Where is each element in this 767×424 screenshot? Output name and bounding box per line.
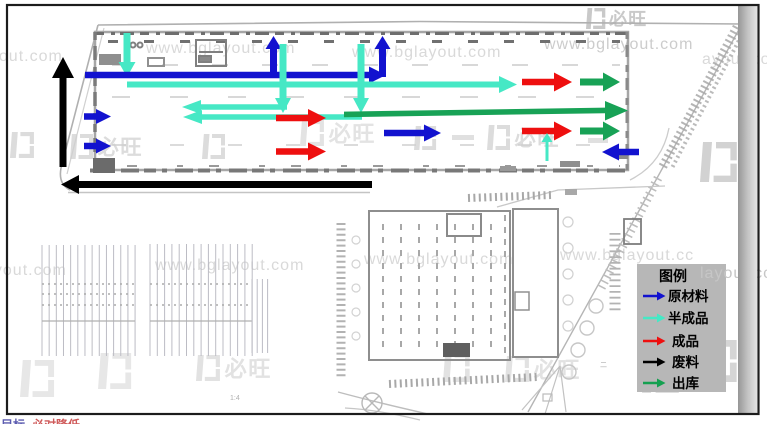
svg-text:图例: 图例 — [659, 268, 687, 284]
svg-text:必旺: 必旺 — [225, 356, 272, 381]
svg-text:必对降低: 必对降低 — [31, 417, 80, 424]
svg-text:必旺: 必旺 — [329, 121, 376, 146]
svg-text:www.bglayout.cc: www.bglayout.cc — [559, 247, 694, 264]
svg-text:www.bglayout.com: www.bglayout.com — [351, 44, 501, 61]
svg-text:出库: 出库 — [672, 375, 700, 391]
svg-text:www.bglayout.com: www.bglayout.com — [543, 36, 693, 53]
svg-text:原材料: 原材料 — [668, 288, 709, 304]
svg-text:二: 二 — [600, 362, 607, 369]
svg-text:ayout.co: ayout.co — [702, 51, 767, 68]
svg-text:1:4: 1:4 — [230, 395, 240, 402]
svg-text:半成品: 半成品 — [668, 310, 709, 326]
svg-text:废料: 废料 — [672, 354, 700, 370]
svg-text:必旺: 必旺 — [608, 8, 647, 29]
svg-text:成品: 成品 — [672, 333, 699, 349]
svg-text:目标: 目标 — [1, 417, 25, 424]
svg-text:www.bglayout.com: www.bglayout.com — [154, 257, 304, 274]
svg-text:ayout.com: ayout.com — [0, 48, 63, 65]
